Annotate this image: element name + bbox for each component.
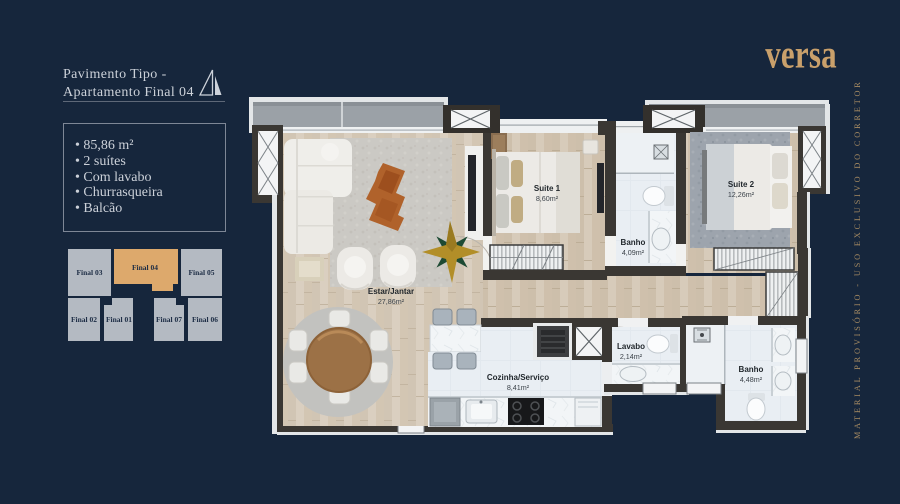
svg-text:Final 07: Final 07 — [156, 315, 182, 324]
svg-text:Cozinha/Serviço: Cozinha/Serviço — [487, 373, 549, 382]
svg-text:Final 05: Final 05 — [188, 268, 214, 277]
svg-text:4,48m²: 4,48m² — [740, 375, 763, 384]
svg-text:Final 02: Final 02 — [71, 315, 97, 324]
svg-text:• 85,86 m²: • 85,86 m² — [75, 138, 134, 153]
svg-text:Final 03: Final 03 — [76, 268, 102, 277]
svg-text:MATERIAL PROVISÓRIO - USO EXCL: MATERIAL PROVISÓRIO - USO EXCLUSIVO DO C… — [852, 79, 862, 439]
svg-text:Final 01: Final 01 — [106, 315, 132, 324]
svg-text:Suite 2: Suite 2 — [728, 180, 755, 189]
svg-text:Apartamento Final 04: Apartamento Final 04 — [63, 85, 194, 100]
svg-text:4,09m²: 4,09m² — [622, 248, 645, 257]
svg-text:12,26m²: 12,26m² — [728, 190, 755, 199]
svg-text:Pavimento Tipo -: Pavimento Tipo - — [63, 67, 167, 82]
svg-text:2,14m²: 2,14m² — [620, 352, 643, 361]
svg-text:8,41m²: 8,41m² — [507, 383, 530, 392]
svg-text:• Com lavabo: • Com lavabo — [75, 170, 151, 185]
svg-text:27,86m²: 27,86m² — [378, 297, 405, 306]
svg-text:Banho: Banho — [621, 238, 646, 247]
svg-text:versa: versa — [765, 32, 837, 77]
svg-text:8,60m²: 8,60m² — [536, 194, 559, 203]
svg-text:Final 06: Final 06 — [192, 315, 218, 324]
svg-text:Banho: Banho — [739, 365, 764, 374]
svg-text:• Churrasqueira: • Churrasqueira — [75, 185, 163, 200]
svg-text:Lavabo: Lavabo — [617, 342, 645, 351]
svg-text:• 2 suítes: • 2 suítes — [75, 154, 126, 169]
svg-text:Suite 1: Suite 1 — [534, 184, 561, 193]
svg-text:Final 04: Final 04 — [132, 263, 158, 272]
svg-text:• Balcão: • Balcão — [75, 201, 122, 216]
svg-text:Estar/Jantar: Estar/Jantar — [368, 287, 414, 296]
